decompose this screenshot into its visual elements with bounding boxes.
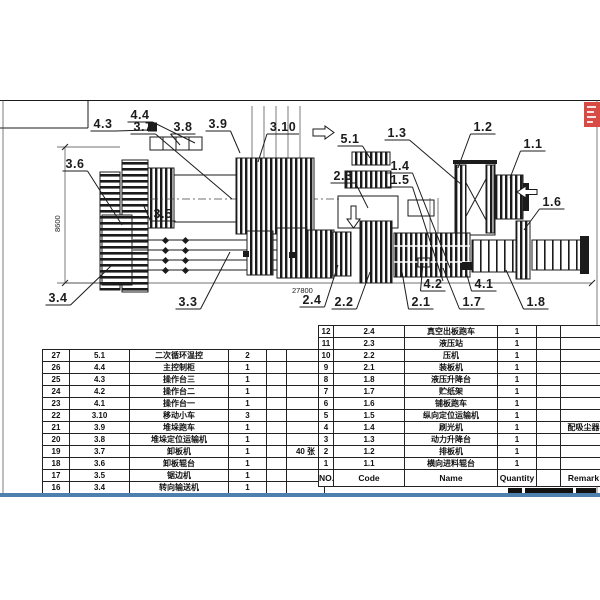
bom-cell: 1.7 [334, 386, 405, 398]
table-row: 234.1操作台一1 [43, 398, 325, 410]
bom-cell: 1 [498, 386, 537, 398]
dim-height-label: 8600 [53, 215, 62, 232]
bom-cell [561, 446, 600, 458]
bom-cell: 1 [498, 410, 537, 422]
bom-cell: 液压升降台 [405, 374, 498, 386]
bom-cell: 1 [498, 326, 537, 338]
bom-cell: NO. [319, 470, 334, 487]
bom-cell: 二次循环温控 [130, 350, 229, 362]
bom-cell: 6 [319, 398, 334, 410]
bom-cell [537, 410, 561, 422]
bom-cell: 1 [229, 398, 267, 410]
limit-flag-a [243, 251, 249, 257]
bom-cell: 操作台二 [130, 386, 229, 398]
bom-cell [537, 386, 561, 398]
table-row: 244.2操作台二1 [43, 386, 325, 398]
bom-cell: 1 [498, 398, 537, 410]
bom-cell [537, 338, 561, 350]
bom-table-right: 122.4真空出板跑车1112.3液压站1102.2压机192.1装板机181.… [318, 325, 600, 487]
callout-label: 3.7 [134, 120, 153, 134]
callout-label: 1.4 [391, 159, 410, 173]
callout-label: 2.4 [303, 293, 322, 307]
table-row: 203.8堆垛定位运输机1 [43, 434, 325, 446]
bom-cell: 21 [43, 422, 70, 434]
bom-cell: 1.2 [334, 446, 405, 458]
saw-unit [247, 231, 273, 275]
machine-layout-drawing: 8600 27800 [0, 0, 600, 600]
table-row: 71.7贮纸架1 [319, 386, 600, 398]
bom-cell: 1.4 [334, 422, 405, 434]
bom-cell: 3.10 [70, 410, 130, 422]
bom-cell: 1 [229, 362, 267, 374]
callout-label: 1.1 [524, 137, 543, 151]
bom-cell: 3.4 [70, 482, 130, 494]
bom-cell: 2.2 [334, 350, 405, 362]
bom-cell: 1 [498, 446, 537, 458]
bom-cell: 18 [43, 458, 70, 470]
board-lifter-tower [453, 160, 497, 235]
bom-cell: 22 [43, 410, 70, 422]
bom-cell: 1.5 [334, 410, 405, 422]
table-row: 183.6卸板辊台1 [43, 458, 325, 470]
bom-cell [267, 350, 287, 362]
table-row: 122.4真空出板跑车1 [319, 326, 600, 338]
bom-cell: 4.3 [70, 374, 130, 386]
bom-cell: Name [405, 470, 498, 487]
bom-cell: 1 [229, 386, 267, 398]
bom-cell [267, 374, 287, 386]
end-conveyor [532, 240, 584, 270]
bom-cell: 23 [43, 398, 70, 410]
bom-cell: 压机 [405, 350, 498, 362]
bom-cell [537, 326, 561, 338]
console-1 [462, 262, 472, 270]
bom-cell [561, 326, 600, 338]
bom-cell: 操作台三 [130, 374, 229, 386]
table-row: 112.3液压站1 [319, 338, 600, 350]
bom-cell: 2 [319, 446, 334, 458]
bom-cell: 堆垛跑车 [130, 422, 229, 434]
bom-cell: 1 [229, 422, 267, 434]
callout-label: 1.7 [463, 295, 482, 309]
bom-cell: 1 [229, 482, 267, 494]
bom-cell: 1 [498, 374, 537, 386]
bom-cell: 1 [229, 446, 267, 458]
bom-cell [537, 470, 561, 487]
bom-cell: 3 [229, 410, 267, 422]
bom-cell: 贮纸架 [405, 386, 498, 398]
bom-cell: 12 [319, 326, 334, 338]
callout-label: 3.6 [66, 157, 85, 171]
callout-label: 3.4 [49, 291, 68, 305]
bom-cell [537, 446, 561, 458]
bom-cell: 2 [229, 350, 267, 362]
bom-cell: 11 [319, 338, 334, 350]
table-row: 92.1装板机1 [319, 362, 600, 374]
table-row: 254.3操作台三1 [43, 374, 325, 386]
table-row: 81.8液压升降台1 [319, 374, 600, 386]
board-loader [394, 233, 470, 277]
bom-cell: 1 [229, 434, 267, 446]
bom-cell: 1 [498, 362, 537, 374]
bom-cell: 2.1 [334, 362, 405, 374]
bom-cell [561, 338, 600, 350]
bom-cell: 1 [229, 458, 267, 470]
bom-cell: 1 [319, 458, 334, 470]
bom-cell: 卸板辊台 [130, 458, 229, 470]
callout-label: 5.1 [341, 132, 360, 146]
bom-cell: 4.4 [70, 362, 130, 374]
bom-cell [561, 398, 600, 410]
bom-cell: 1 [498, 434, 537, 446]
callout-label: 2.1 [412, 295, 431, 309]
lift-tower [516, 221, 530, 279]
callout-label: 3.9 [209, 117, 228, 131]
bom-cell: 排板机 [405, 446, 498, 458]
bom-cell: 1.1 [334, 458, 405, 470]
bom-cell: 2.4 [334, 326, 405, 338]
bom-cell: 横向进料辊台 [405, 458, 498, 470]
table-row: 51.5纵向定位运输机1 [319, 410, 600, 422]
bom-cell: 纵向定位运输机 [405, 410, 498, 422]
bom-cell: 转向输送机 [130, 482, 229, 494]
bom-cell [561, 350, 600, 362]
bom-header-row: NO.CodeNameQuantityRemark [319, 470, 600, 487]
callout-label: 2.2 [335, 295, 354, 309]
table-row: 275.1二次循环温控2 [43, 350, 325, 362]
bom-cell [267, 398, 287, 410]
bom-cell: 4 [319, 422, 334, 434]
red-stamp-seal [584, 102, 600, 127]
bom-cell: 2.3 [334, 338, 405, 350]
bom-cell: 27 [43, 350, 70, 362]
bom-cell: 1 [498, 458, 537, 470]
bom-cell [267, 410, 287, 422]
bom-cell: 4.1 [70, 398, 130, 410]
bom-cell: 锯边机 [130, 470, 229, 482]
bom-cell: 9 [319, 362, 334, 374]
callout-label: 1.3 [388, 126, 407, 140]
bom-cell: Quantity [498, 470, 537, 487]
bom-cell: 1 [498, 422, 537, 434]
conveyor-unit-2 [308, 230, 334, 278]
table-row: 223.10移动小车3 [43, 410, 325, 422]
bom-cell: 配吸尘器 [561, 422, 600, 434]
stack-positioner [236, 158, 314, 234]
bom-cell [561, 362, 600, 374]
bom-cell [537, 398, 561, 410]
bom-cell [267, 422, 287, 434]
callout-3.9: 3.9 [206, 117, 241, 153]
callout-label: 1.2 [474, 120, 493, 134]
bom-cell: 1 [498, 338, 537, 350]
bom-cell [267, 470, 287, 482]
bom-cell [537, 374, 561, 386]
callout-label: 3.10 [270, 120, 296, 134]
bom-cell [267, 362, 287, 374]
table-row: 193.7卸板机140 张 [43, 446, 325, 458]
temp-control-unit-a [352, 152, 390, 165]
bom-cell: 26 [43, 362, 70, 374]
table-row: 213.9堆垛跑车1 [43, 422, 325, 434]
bom-cell: 卸板机 [130, 446, 229, 458]
cad-drawing-sheet: 8600 27800 [0, 0, 600, 600]
callout-1.1: 1.1 [510, 137, 546, 178]
bom-cell: 17 [43, 470, 70, 482]
bom-cell: 3.7 [70, 446, 130, 458]
bom-cell: 3.8 [70, 434, 130, 446]
table-row: 102.2压机1 [319, 350, 600, 362]
bom-cell: 1 [229, 374, 267, 386]
bom-cell: 7 [319, 386, 334, 398]
bom-cell: 液压站 [405, 338, 498, 350]
bom-cell: 1.8 [334, 374, 405, 386]
callout-label: 2.3 [334, 169, 353, 183]
callout-label: 3.5 [154, 207, 173, 221]
bom-cell: 移动小车 [130, 410, 229, 422]
limit-flag-b [289, 252, 295, 258]
bom-cell: 刷光机 [405, 422, 498, 434]
bom-cell [561, 434, 600, 446]
bom-cell [537, 422, 561, 434]
bom-cell [537, 362, 561, 374]
bom-cell: 动力升降台 [405, 434, 498, 446]
bom-cell [267, 482, 287, 494]
table-row: 264.4主控制柜1 [43, 362, 325, 374]
callout-label: 4.3 [94, 117, 113, 131]
bom-cell: 铺板跑车 [405, 398, 498, 410]
hot-press [360, 221, 392, 283]
bom-cell: 堆垛定位运输机 [130, 434, 229, 446]
bom-cell [537, 350, 561, 362]
callout-label: 1.6 [543, 195, 562, 209]
vacuum-cart [333, 232, 351, 276]
bom-cell [267, 434, 287, 446]
bom-cell: 1.6 [334, 398, 405, 410]
turn-conveyor [102, 215, 132, 285]
bom-cell: 10 [319, 350, 334, 362]
bom-cell: 19 [43, 446, 70, 458]
table-row: 21.2排板机1 [319, 446, 600, 458]
bom-cell: 20 [43, 434, 70, 446]
bom-cell: 1 [498, 350, 537, 362]
bom-cell: 装板机 [405, 362, 498, 374]
flow-arrow-right-icon [313, 126, 334, 139]
unloader-body [174, 175, 236, 222]
main-machine-line [102, 215, 589, 285]
bom-cell: 4.2 [70, 386, 130, 398]
bom-cell [537, 434, 561, 446]
callout-label: 1.8 [527, 295, 546, 309]
bom-cell [561, 386, 600, 398]
bom-cell: 1 [229, 470, 267, 482]
end-block [580, 236, 589, 274]
table-row: 163.4转向输送机1 [43, 482, 325, 494]
bom-cell [267, 446, 287, 458]
bom-cell: 1.3 [334, 434, 405, 446]
bom-cell: 主控制柜 [130, 362, 229, 374]
callout-label: 4.2 [424, 277, 443, 291]
bom-cell: 真空出板跑车 [405, 326, 498, 338]
table-row: 41.4刷光机1配吸尘器 [319, 422, 600, 434]
bom-cell: 5 [319, 410, 334, 422]
table-row: 31.3动力升降台1 [319, 434, 600, 446]
table-row: 173.5锯边机1 [43, 470, 325, 482]
bom-cell: 8 [319, 374, 334, 386]
lift-conveyor [472, 240, 516, 272]
bom-cell [561, 410, 600, 422]
callout-label: 3.8 [174, 120, 193, 134]
bom-cell: 3.9 [70, 422, 130, 434]
callout-label: 3.3 [179, 295, 198, 309]
bom-cell: 25 [43, 374, 70, 386]
bom-cell: 16 [43, 482, 70, 494]
callout-label: 4.1 [475, 277, 494, 291]
bom-table-left: 275.1二次循环温控2264.4主控制柜1254.3操作台三1244.2操作台… [42, 349, 325, 494]
bom-cell: 5.1 [70, 350, 130, 362]
bom-cell [561, 374, 600, 386]
bom-cell [561, 458, 600, 470]
infeed-roller-table [495, 175, 523, 219]
callout-label: 1.5 [391, 173, 410, 187]
bom-cell: 3 [319, 434, 334, 446]
bom-cell: Code [334, 470, 405, 487]
conveyor-rollers [162, 237, 189, 274]
bom-cell: 操作台一 [130, 398, 229, 410]
bom-cell [267, 458, 287, 470]
bom-cell: 24 [43, 386, 70, 398]
bottom-blue-rule [0, 493, 600, 497]
bom-cell: 3.5 [70, 470, 130, 482]
table-row: 11.1横向进料辊台1 [319, 458, 600, 470]
flow-arrow-down-icon [347, 206, 360, 228]
bom-cell: 3.6 [70, 458, 130, 470]
bom-cell: Remark [561, 470, 600, 487]
table-row: 61.6铺板跑车1 [319, 398, 600, 410]
bom-cell [537, 458, 561, 470]
bom-cell [267, 386, 287, 398]
